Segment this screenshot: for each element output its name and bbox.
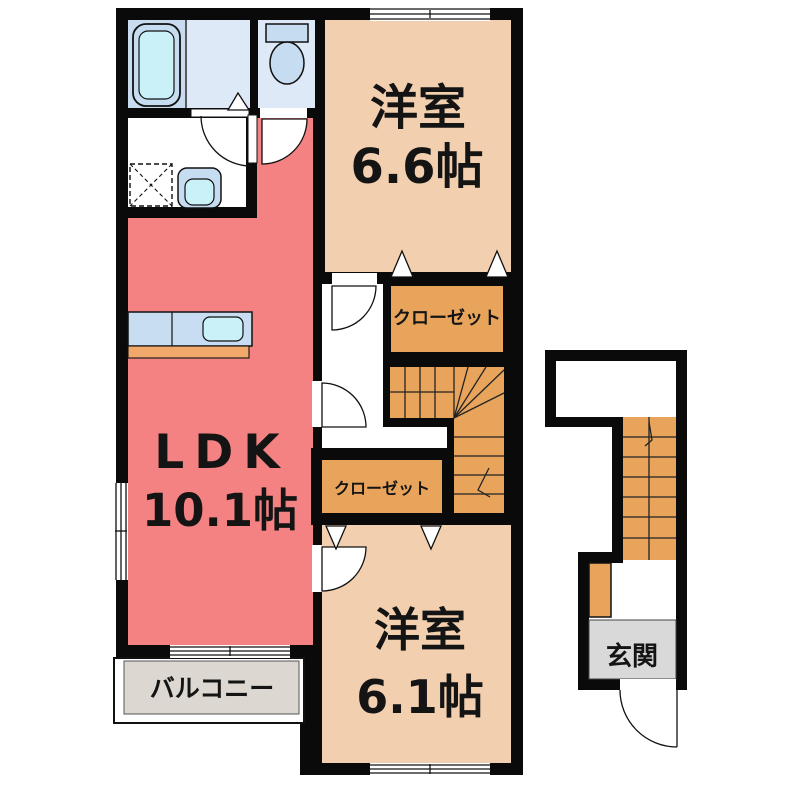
window-ldk-balcony [170,645,290,658]
toilet-icon [266,24,308,84]
room-ldk-name: LDK [154,425,289,480]
washing-machine-icon [130,164,172,206]
entrance-step [589,563,611,617]
kitchen-counter-base [128,346,249,358]
window-room66-top [370,7,490,21]
closet-lower-label: クローゼット [334,479,430,498]
room-61-name: 洋室 [374,603,466,657]
entrance-label: 玄関 [606,641,658,672]
toilet-door-opening [260,108,307,118]
balcony-label: バルコニー [150,674,275,703]
entrance-door-opening [620,679,676,690]
wall-room61-top [313,513,523,525]
vanity-sink-icon [178,168,221,208]
window-room61-bottom [370,763,490,775]
bathroom-floor [186,20,250,108]
room-66-size: 6.6帖 [350,139,483,195]
closet-upper-label: クローゼット [393,307,501,329]
ldk-door-opening [312,381,322,427]
room-66-name: 洋室 [370,80,466,136]
bathtub-icon [133,24,180,106]
window-ldk-left [114,483,128,580]
floor-plan-svg: 洋室 6.6帖 LDK 10.1帖 洋室 6.1帖 クローゼット クローゼット … [0,0,800,800]
washroom-door-leaf [248,115,257,163]
hallway-door-opening [332,273,377,284]
room-61-size: 6.1帖 [356,670,484,724]
kitchen-counter-icon [128,312,252,358]
room-ldk-size: 10.1帖 [142,484,298,537]
entrance-door-swing [620,690,677,747]
floor-plan: 洋室 6.6帖 LDK 10.1帖 洋室 6.1帖 クローゼット クローゼット … [0,0,800,800]
room61-door-opening [312,545,322,592]
kitchen-sink-icon [203,317,243,341]
